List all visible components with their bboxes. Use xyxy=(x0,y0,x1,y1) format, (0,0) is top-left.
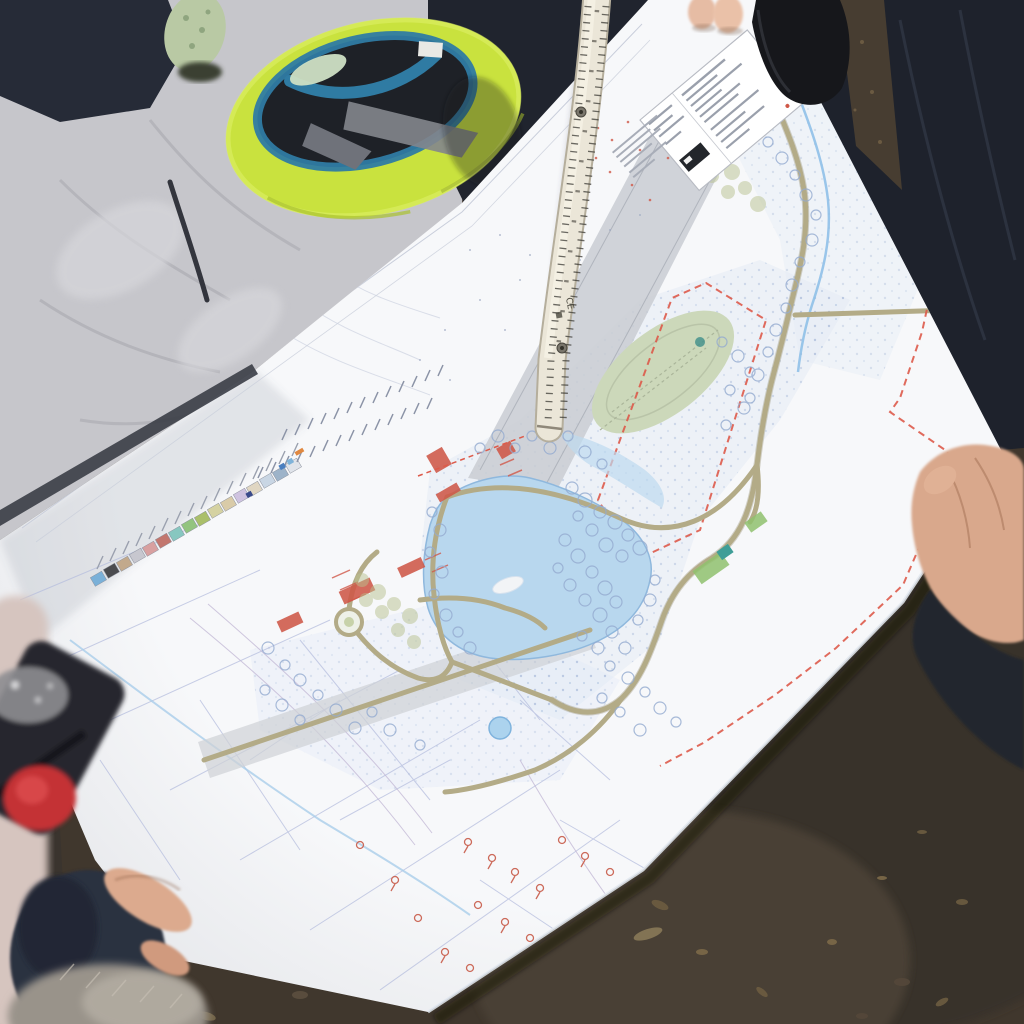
ruler-black-square-mark xyxy=(556,312,563,319)
scene-canvas: CE xyxy=(0,0,1024,1024)
ruler-ce-mark: CE xyxy=(563,297,575,311)
field-teal-mark xyxy=(695,337,705,347)
beanie-shadow xyxy=(18,876,98,980)
helmet-label xyxy=(418,41,443,58)
small-pond xyxy=(489,717,511,739)
photo-scene: CE xyxy=(0,0,1024,1024)
